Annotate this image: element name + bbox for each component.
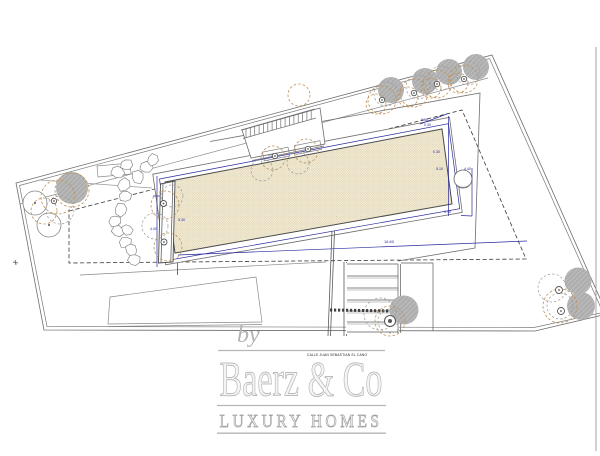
svg-text:6.36: 6.36: [421, 118, 428, 122]
svg-text:5.30: 5.30: [178, 218, 185, 222]
svg-text:5.10: 5.10: [436, 167, 443, 171]
svg-text:LUXURY HOMES: LUXURY HOMES: [220, 411, 383, 431]
svg-text:0.90: 0.90: [444, 210, 451, 214]
svg-text:0.30: 0.30: [424, 123, 431, 127]
svg-text:by: by: [237, 322, 260, 348]
svg-text:0.30: 0.30: [433, 150, 440, 154]
svg-text:4.00: 4.00: [150, 227, 157, 231]
svg-text:Baerz & Co: Baerz & Co: [220, 351, 383, 407]
svg-text:16.60: 16.60: [384, 239, 395, 244]
